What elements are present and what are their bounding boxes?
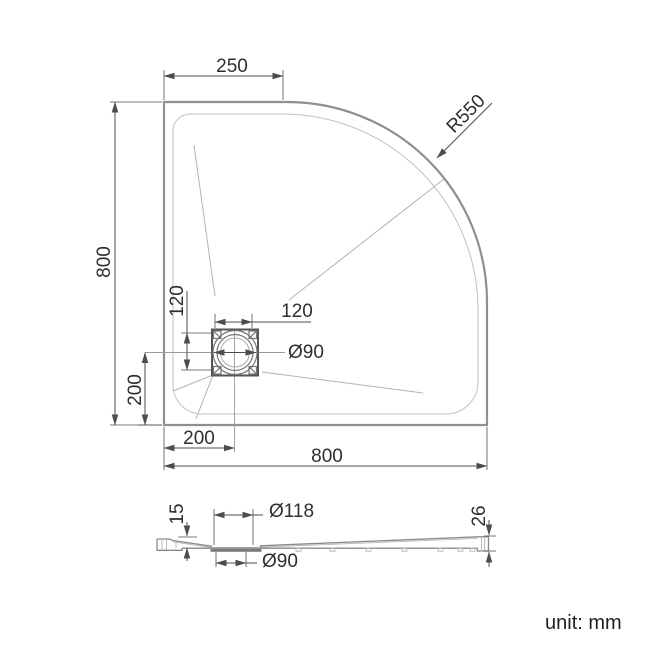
- dim-label-top-250: 250: [216, 56, 248, 77]
- dim-section-dia-118: Ø118: [214, 501, 314, 545]
- dim-section-15: 15: [167, 503, 197, 561]
- dim-label-bottom-800: 800: [311, 446, 343, 467]
- plan-view: 250 800 R550 120 120: [94, 56, 492, 470]
- dim-label-200-vertical: 200: [125, 374, 146, 406]
- dim-label-drain-dia: Ø90: [288, 342, 324, 363]
- dim-label-dia-118: Ø118: [269, 501, 314, 522]
- dim-section-dia-90: Ø90: [216, 551, 298, 572]
- dim-top-250: 250: [164, 56, 283, 100]
- unit-note: unit: mm: [545, 612, 622, 634]
- section-profile: [157, 537, 489, 552]
- section-drain-flange: [211, 549, 262, 552]
- section-view: Ø118 15 Ø90 26: [157, 501, 496, 572]
- dim-label-r550: R550: [443, 91, 490, 138]
- dim-offset-200-vertical: 200: [125, 353, 162, 426]
- shower-tray-drawing: 250 800 R550 120 120: [0, 0, 650, 650]
- dim-label-section-dia-90: Ø90: [262, 551, 298, 572]
- dim-offset-200-horizontal: 200: [164, 427, 235, 470]
- dim-label-120-vertical: 120: [167, 285, 188, 317]
- dim-label-200-horizontal: 200: [183, 428, 215, 449]
- dim-label-left-800: 800: [94, 246, 115, 278]
- dim-label-120-horizontal: 120: [281, 301, 313, 322]
- dim-label-26: 26: [469, 505, 490, 526]
- dim-label-15: 15: [167, 503, 188, 524]
- dim-radius-r550: R550: [437, 91, 492, 158]
